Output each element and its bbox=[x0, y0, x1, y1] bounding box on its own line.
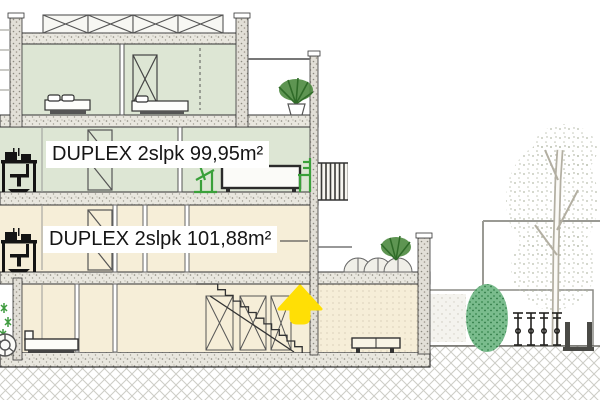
roof-slab bbox=[20, 33, 248, 44]
sofa-icon bbox=[222, 166, 300, 192]
left-wall-cap bbox=[8, 13, 24, 18]
annex-wall-cap bbox=[416, 233, 432, 238]
lower-duplex-label: DUPLEX 2slpk 101,88m² bbox=[43, 226, 277, 253]
attic-right-wall bbox=[236, 18, 248, 127]
right-wall-cap bbox=[234, 13, 250, 18]
architectural-section-image: DUPLEX 2slpk 99,95m² DUPLEX 2slpk 101,88… bbox=[0, 0, 600, 400]
partition bbox=[113, 284, 117, 352]
annex-right-wall bbox=[418, 238, 430, 354]
lower-floor-slab bbox=[0, 272, 430, 284]
roof-railing bbox=[43, 15, 223, 33]
upper-duplex-label: DUPLEX 2slpk 99,95m² bbox=[46, 141, 269, 168]
attic-partition bbox=[120, 44, 124, 115]
attic-left-wall bbox=[10, 18, 22, 127]
mid-wall-cap bbox=[308, 51, 320, 56]
log-section-icon bbox=[0, 334, 16, 356]
garden-bush-icon bbox=[466, 284, 508, 352]
attic-floor-slab bbox=[0, 115, 318, 127]
balcony-railing bbox=[318, 163, 348, 200]
upper-floor-slab bbox=[0, 192, 318, 205]
foundation-slab bbox=[0, 352, 430, 367]
section-drawing bbox=[0, 0, 600, 400]
